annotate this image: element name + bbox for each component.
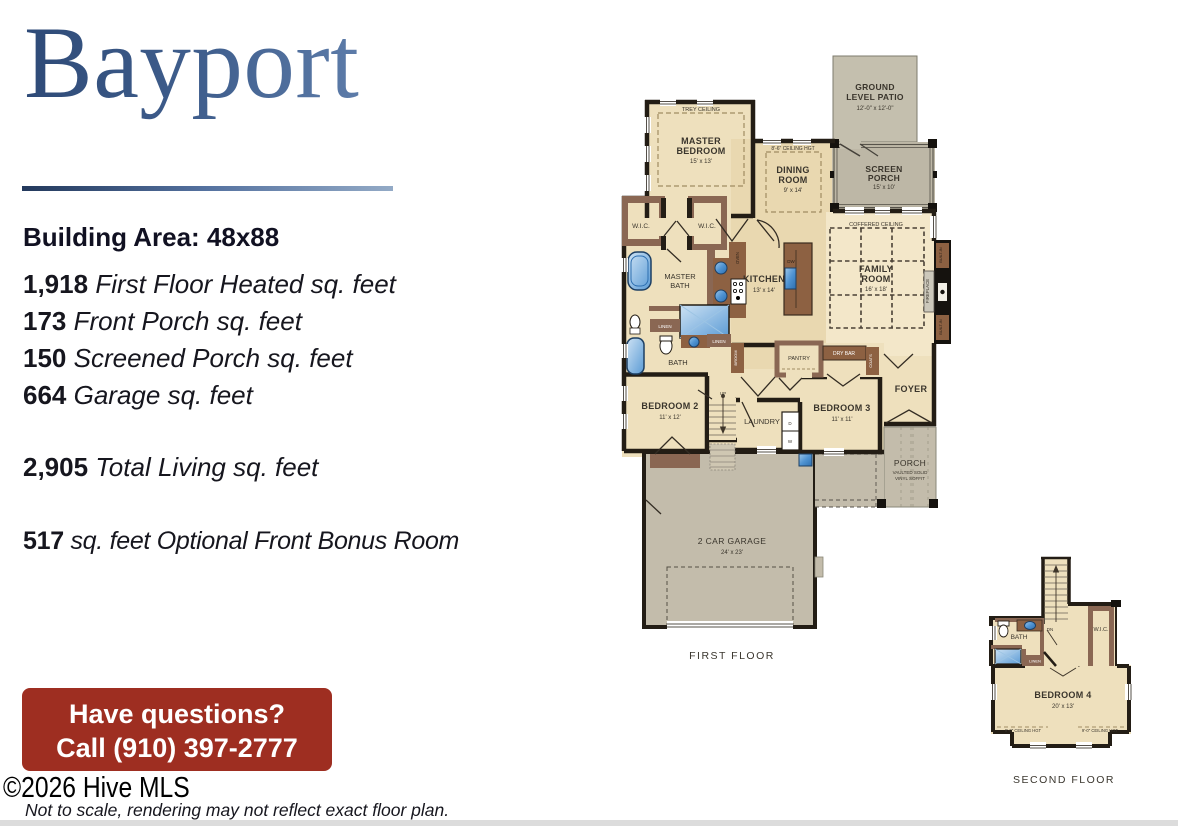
- svg-text:13' x 14': 13' x 14': [753, 288, 775, 294]
- svg-text:8'-6" CEILING HGT: 8'-6" CEILING HGT: [771, 146, 814, 152]
- svg-text:W.I.C.: W.I.C.: [698, 223, 716, 230]
- svg-text:LINEN: LINEN: [1029, 659, 1041, 664]
- svg-text:DINING: DINING: [776, 165, 809, 175]
- svg-text:COATS: COATS: [868, 354, 873, 368]
- svg-text:11' x 11': 11' x 11': [831, 417, 852, 423]
- svg-text:GROUND: GROUND: [855, 82, 895, 92]
- svg-text:KITCHEN: KITCHEN: [743, 274, 785, 284]
- svg-text:VINYL SOFFIT: VINYL SOFFIT: [895, 476, 925, 481]
- svg-text:FAMILY: FAMILY: [859, 264, 893, 274]
- svg-text:16' x 18': 16' x 18': [865, 287, 887, 293]
- svg-text:BUILT-IN: BUILT-IN: [939, 247, 943, 263]
- svg-text:PORCH: PORCH: [894, 458, 926, 468]
- svg-text:LINEN: LINEN: [658, 324, 671, 329]
- svg-text:PANTRY: PANTRY: [788, 356, 810, 362]
- svg-text:BUILT-IN: BUILT-IN: [939, 319, 943, 335]
- svg-text:12'-0" x 12'-0": 12'-0" x 12'-0": [857, 106, 894, 112]
- svg-text:24' x 23': 24' x 23': [721, 550, 743, 556]
- svg-text:15' x 13': 15' x 13': [690, 159, 712, 165]
- svg-text:OVEN: OVEN: [735, 252, 740, 264]
- svg-text:BEDROOM 2: BEDROOM 2: [641, 401, 698, 411]
- svg-text:W.I.C.: W.I.C.: [632, 223, 650, 230]
- svg-text:FIRST FLOOR: FIRST FLOOR: [689, 650, 775, 662]
- svg-text:FOYER: FOYER: [895, 384, 928, 394]
- svg-text:MASTER: MASTER: [664, 272, 696, 281]
- svg-text:9' x 14': 9' x 14': [784, 188, 803, 194]
- svg-text:BATH: BATH: [1011, 634, 1028, 641]
- svg-text:15' x 10': 15' x 10': [873, 185, 895, 191]
- svg-text:PORCH: PORCH: [868, 173, 900, 183]
- svg-text:SECOND FLOOR: SECOND FLOOR: [1013, 774, 1115, 786]
- svg-text:ROOM: ROOM: [861, 274, 890, 284]
- svg-text:UP: UP: [720, 391, 726, 396]
- svg-text:BROOM: BROOM: [733, 350, 738, 365]
- svg-text:BEDROOM 3: BEDROOM 3: [813, 403, 870, 413]
- svg-text:9'-0" CEILING HGT: 9'-0" CEILING HGT: [1082, 728, 1119, 733]
- svg-text:COFFERED CEILING: COFFERED CEILING: [849, 222, 903, 228]
- svg-text:LINEN: LINEN: [712, 339, 725, 344]
- svg-text:2 CAR GARAGE: 2 CAR GARAGE: [698, 536, 767, 546]
- svg-text:BATH: BATH: [670, 281, 689, 290]
- svg-text:BATH: BATH: [668, 358, 687, 367]
- svg-text:FIREPLACE: FIREPLACE: [925, 279, 930, 303]
- svg-text:LEVEL PATIO: LEVEL PATIO: [846, 92, 904, 102]
- svg-text:W.I.C.: W.I.C.: [1094, 627, 1109, 633]
- svg-text:20' x 13': 20' x 13': [1052, 704, 1074, 710]
- svg-text:11' x 12': 11' x 12': [659, 415, 681, 421]
- svg-text:BEDROOM 4: BEDROOM 4: [1034, 690, 1091, 700]
- svg-text:9'-0" CEILING HGT: 9'-0" CEILING HGT: [1005, 728, 1042, 733]
- svg-text:BEDROOM: BEDROOM: [676, 146, 725, 156]
- svg-text:DRY BAR: DRY BAR: [833, 351, 855, 357]
- svg-text:TREY CEILING: TREY CEILING: [682, 107, 720, 113]
- svg-text:DW: DW: [787, 259, 795, 264]
- svg-text:ROOM: ROOM: [778, 175, 807, 185]
- svg-text:MASTER: MASTER: [681, 136, 721, 146]
- svg-text:VAULTED SOLID: VAULTED SOLID: [893, 470, 929, 475]
